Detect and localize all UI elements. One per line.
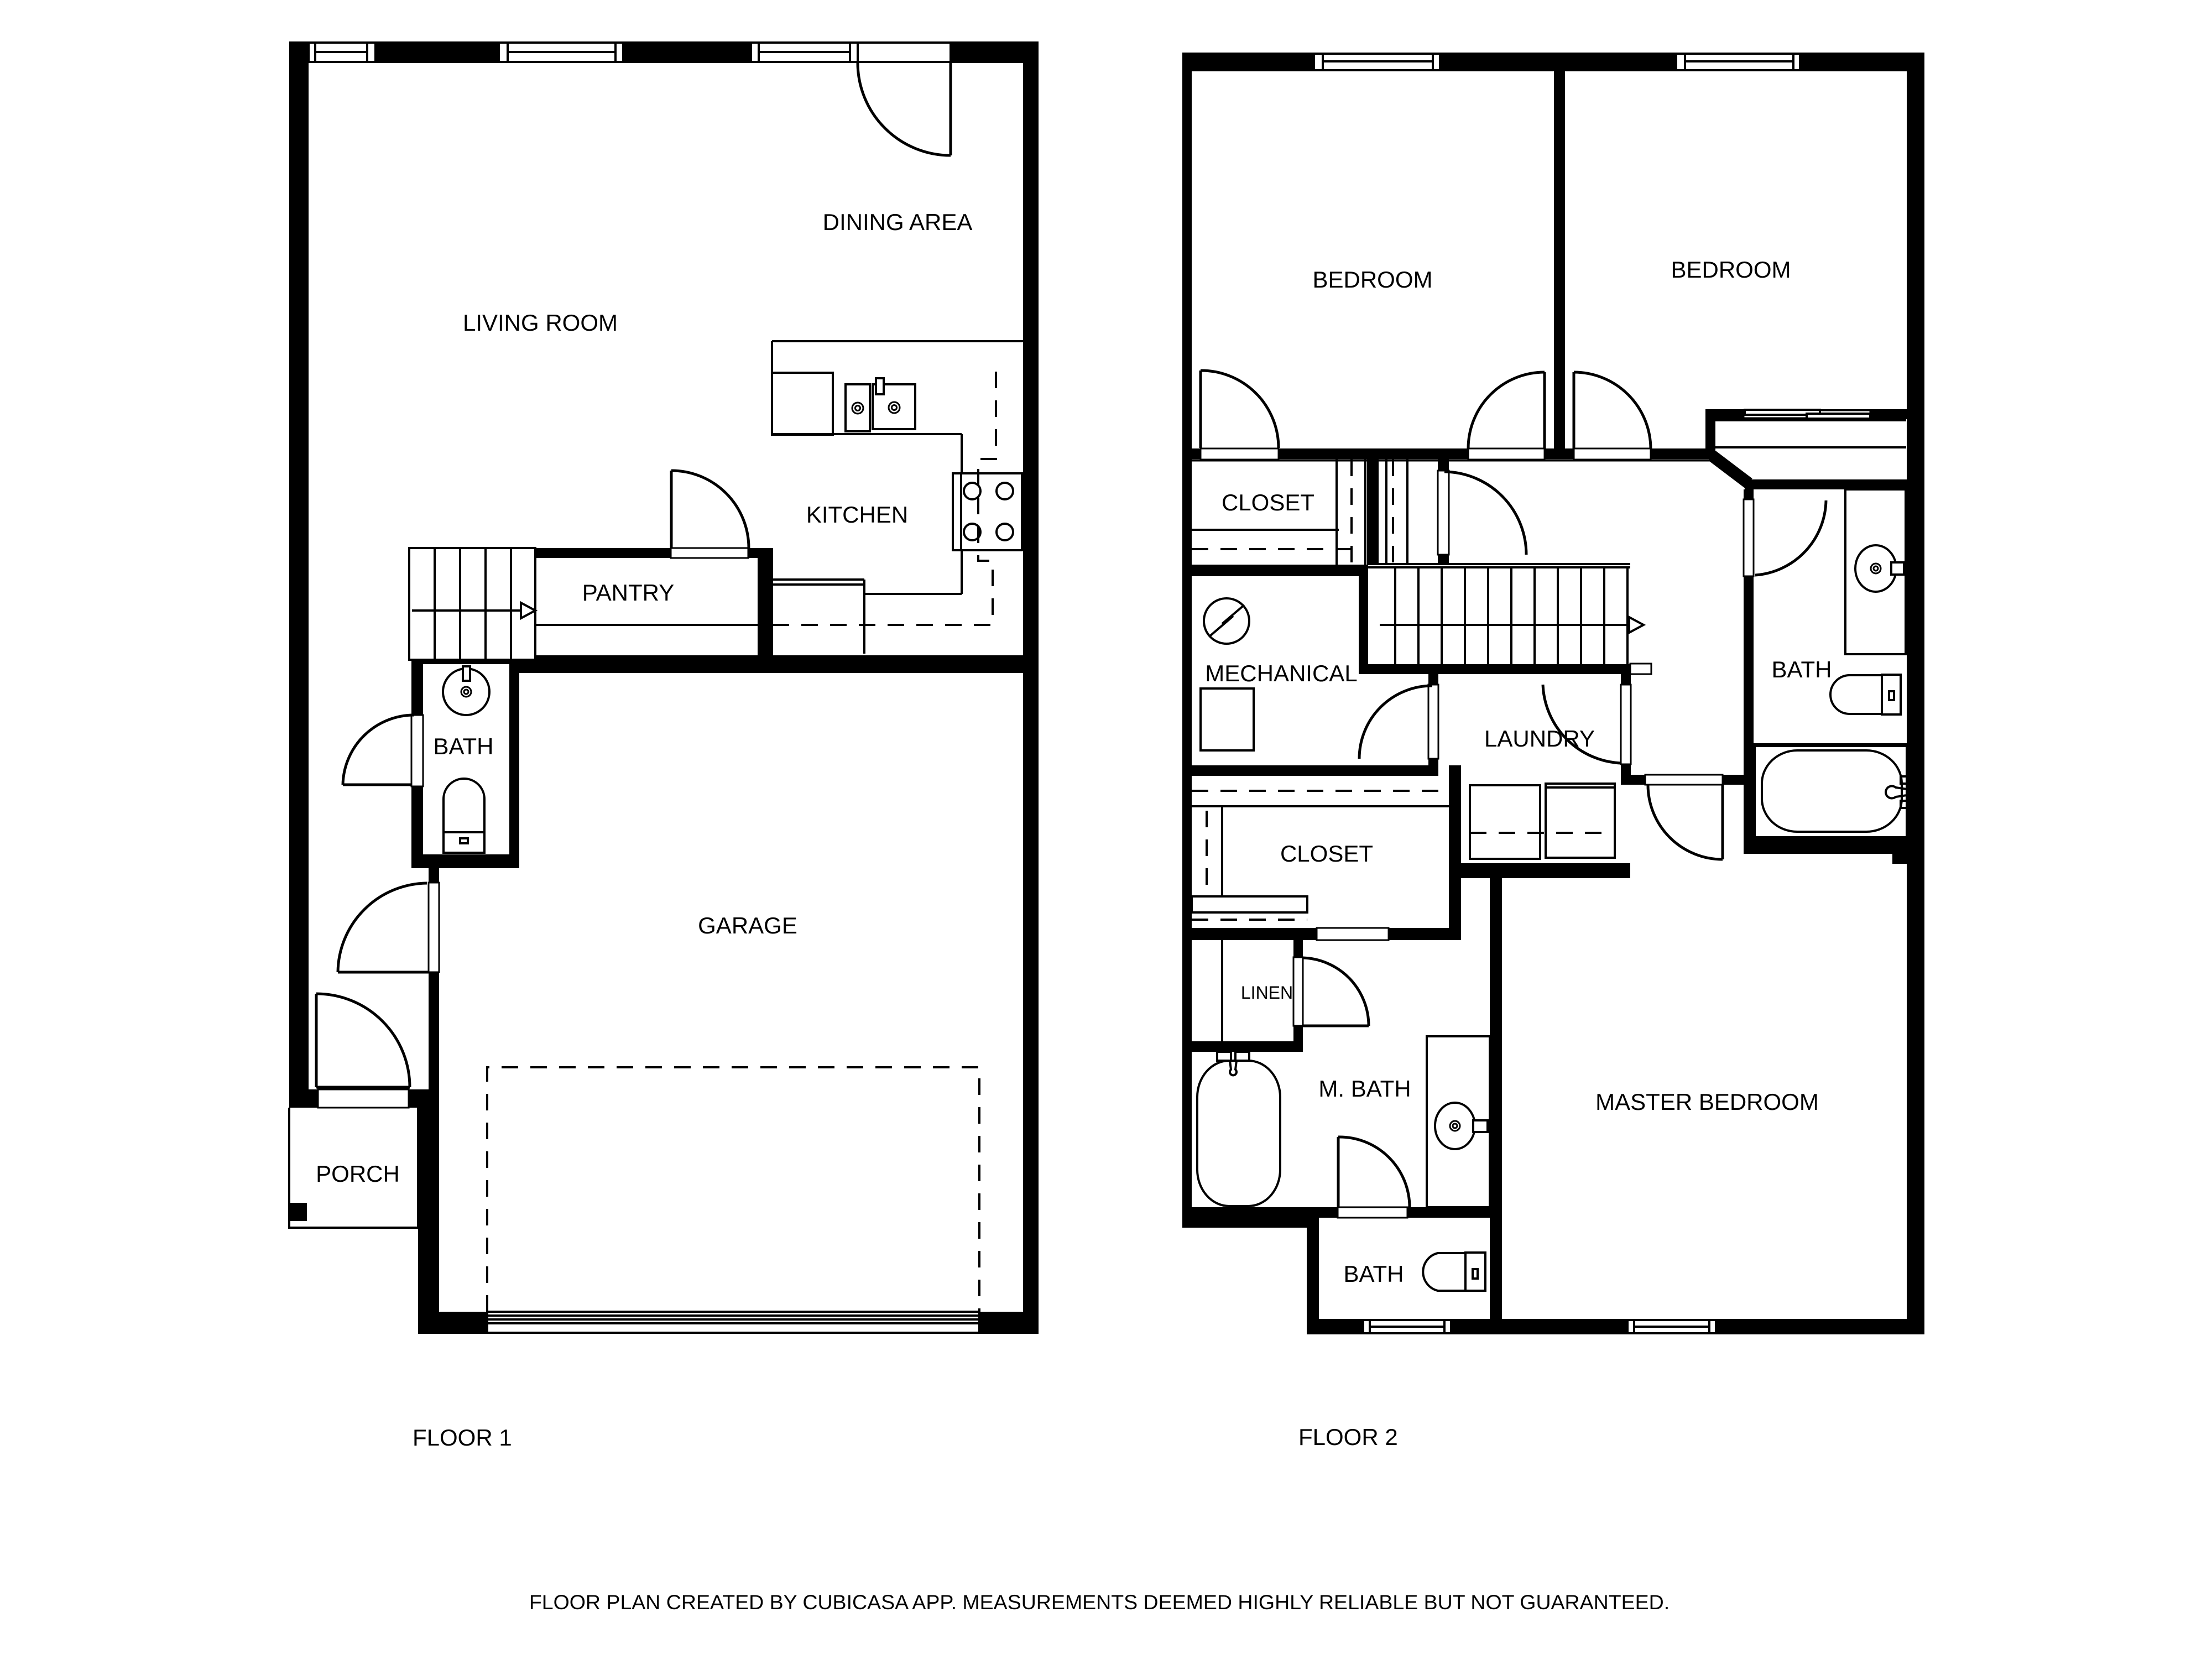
svg-text:PORCH: PORCH	[316, 1161, 400, 1187]
svg-text:MASTER BEDROOM: MASTER BEDROOM	[1595, 1089, 1819, 1115]
svg-text:PANTRY: PANTRY	[582, 580, 674, 606]
svg-text:M. BATH: M. BATH	[1318, 1076, 1411, 1102]
svg-text:CLOSET: CLOSET	[1222, 489, 1314, 515]
svg-text:FLOOR 2: FLOOR 2	[1298, 1424, 1398, 1450]
svg-text:KITCHEN: KITCHEN	[806, 502, 908, 528]
svg-text:LIVING ROOM: LIVING ROOM	[463, 310, 618, 336]
svg-text:GARAGE: GARAGE	[698, 912, 797, 938]
svg-text:LAUNDRY: LAUNDRY	[1484, 726, 1595, 752]
svg-text:BATH: BATH	[434, 733, 494, 759]
svg-text:BEDROOM: BEDROOM	[1312, 267, 1432, 293]
svg-text:BATH: BATH	[1344, 1261, 1404, 1287]
svg-text:BATH: BATH	[1772, 656, 1832, 682]
svg-text:MECHANICAL: MECHANICAL	[1205, 660, 1357, 686]
svg-text:LINEN: LINEN	[1241, 983, 1293, 1003]
svg-text:FLOOR 1: FLOOR 1	[413, 1425, 512, 1451]
svg-text:CLOSET: CLOSET	[1280, 841, 1373, 867]
svg-text:FLOOR PLAN CREATED BY CUBICASA: FLOOR PLAN CREATED BY CUBICASA APP. MEAS…	[529, 1590, 1670, 1614]
svg-text:DINING AREA: DINING AREA	[823, 209, 973, 235]
svg-text:BEDROOM: BEDROOM	[1671, 257, 1791, 283]
